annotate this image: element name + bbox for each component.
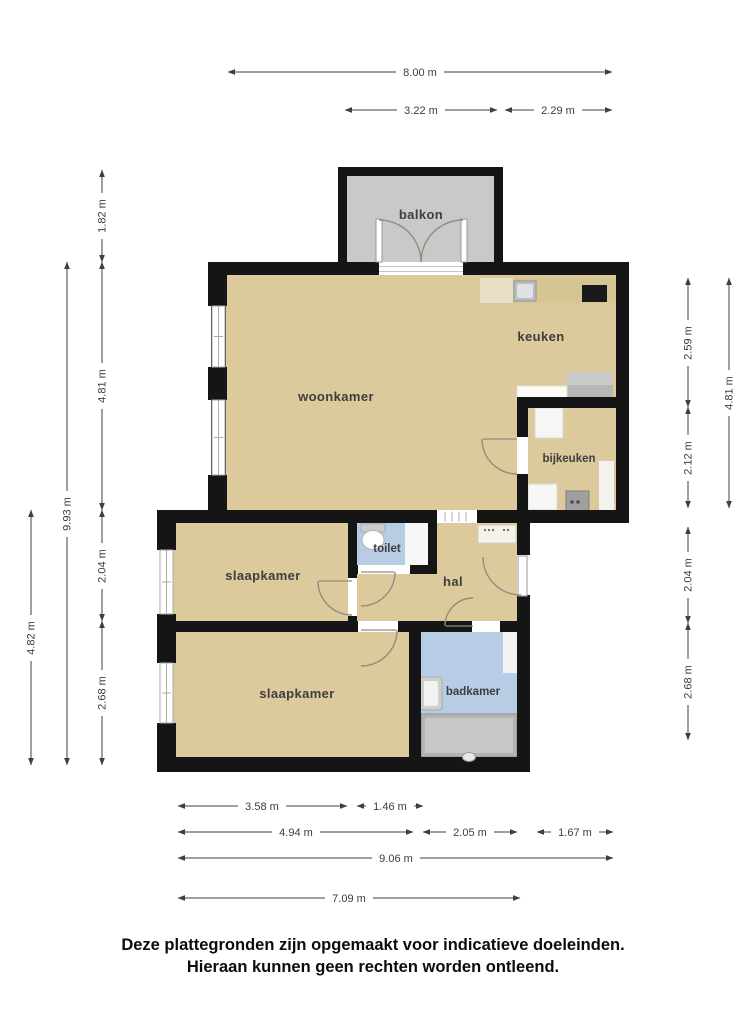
- svg-text:4.94 m: 4.94 m: [279, 827, 313, 839]
- svg-text:3.58 m: 3.58 m: [245, 801, 279, 813]
- dim-bottom-lower: 7.09 m: [178, 891, 520, 905]
- dim-bottom-slaap2: 3.58 m: [178, 799, 347, 813]
- cabinet: [528, 484, 557, 510]
- svg-text:2.29 m: 2.29 m: [541, 105, 575, 117]
- kitchen-counter-end: [480, 278, 513, 303]
- svg-text:1.67 m: 1.67 m: [558, 827, 592, 839]
- toilet-floor-white: [405, 523, 428, 565]
- svg-text:8.00 m: 8.00 m: [403, 67, 437, 79]
- dim-bottom-right: 1.67 m: [537, 825, 613, 839]
- keuken-label: keuken: [517, 329, 564, 344]
- disclaimer-line-2: Hieraan kunnen geen rechten worden ontle…: [187, 958, 559, 976]
- hal-label: hal: [443, 574, 463, 589]
- washer: [535, 408, 563, 438]
- toilet-right-wall: [428, 523, 437, 565]
- upper-right-wall: [616, 262, 629, 523]
- svg-text:2.04 m: 2.04 m: [683, 558, 695, 592]
- dim-left-total: 9.93 m: [60, 262, 74, 765]
- dim-right-bijkeuken: 2.12 m: [681, 407, 695, 508]
- radiator-dot: [503, 529, 505, 531]
- balkon-top-wall: [338, 167, 503, 176]
- svg-text:4.82 m: 4.82 m: [26, 621, 38, 655]
- upper-left-pier: [208, 367, 227, 400]
- badkamer-left-wall: [409, 621, 421, 757]
- radiator: [478, 525, 516, 543]
- radiator-dot: [484, 529, 486, 531]
- svg-text:2.05 m: 2.05 m: [453, 827, 487, 839]
- dim-left-slaap1: 2.04 m: [95, 510, 109, 621]
- fridge-top: [567, 372, 612, 385]
- dim-bottom-total: 9.06 m: [178, 851, 613, 865]
- dim-left-balkon: 1.82 m: [95, 170, 109, 262]
- svg-text:2.59 m: 2.59 m: [683, 326, 695, 360]
- dim-top-balkon: 3.22 m: [345, 103, 497, 117]
- radiator-dot: [488, 529, 490, 531]
- woonkamer-window-1: [212, 306, 225, 367]
- bijkeuken-label: bijkeuken: [542, 453, 595, 465]
- bathtub-inner: [425, 718, 513, 753]
- svg-text:9.93 m: 9.93 m: [62, 497, 74, 531]
- bijkeuken-door-opening: [517, 437, 528, 474]
- bathtub-drain: [463, 753, 476, 762]
- slaapkamer2-label: slaapkamer: [259, 686, 335, 701]
- appliance-knob: [570, 500, 573, 503]
- svg-text:4.81 m: 4.81 m: [97, 369, 109, 403]
- balkon-left-wall: [338, 167, 347, 262]
- svg-text:2.68 m: 2.68 m: [97, 676, 109, 710]
- upper-left-corner-bottom: [208, 475, 227, 510]
- kitchen-sink-basin: [517, 284, 533, 298]
- bathroom-sink-basin: [424, 681, 438, 706]
- svg-text:3.22 m: 3.22 m: [404, 105, 438, 117]
- dim-bottom-toilet: 1.46 m: [357, 799, 423, 813]
- toilet-door-opening: [358, 565, 410, 574]
- floorplan-page: balkon woonkamer keuken bijkeuken toilet…: [0, 0, 746, 1024]
- upper-left-corner-top: [208, 262, 227, 306]
- svg-text:7.09 m: 7.09 m: [332, 893, 366, 905]
- dim-right-keuken: 2.59 m: [681, 278, 695, 407]
- slaapkamer2-window: [160, 663, 173, 723]
- svg-text:2.12 m: 2.12 m: [683, 441, 695, 475]
- bijkeuken-top-wall: [517, 397, 629, 408]
- dim-left-slaap2: 2.68 m: [95, 621, 109, 765]
- woonkamer-label: woonkamer: [297, 389, 374, 404]
- woonkamer-window-2: [212, 400, 225, 475]
- slaapkamer1-window: [160, 550, 173, 614]
- disclaimer: Deze plattegronden zijn opgemaakt voor i…: [121, 936, 624, 976]
- shower-column: [503, 632, 517, 673]
- dim-bottom-badkamer: 2.05 m: [423, 825, 517, 839]
- dim-left-lower: 4.82 m: [24, 510, 38, 765]
- balkon-label: balkon: [399, 207, 443, 222]
- mid-wall: [160, 510, 629, 523]
- dim-top-total: 8.00 m: [228, 65, 612, 79]
- cooktop: [582, 285, 607, 302]
- svg-text:1.82 m: 1.82 m: [97, 199, 109, 233]
- disclaimer-line-1: Deze plattegronden zijn opgemaakt voor i…: [121, 936, 624, 954]
- svg-text:2.04 m: 2.04 m: [97, 549, 109, 583]
- dim-top-right: 2.29 m: [505, 103, 612, 117]
- slaapkamer1-label: slaapkamer: [225, 568, 301, 583]
- dim-right-badkamer: 2.68 m: [681, 623, 695, 740]
- hal-fixtures: [478, 525, 516, 543]
- svg-text:9.06 m: 9.06 m: [379, 853, 413, 865]
- badkamer-label: badkamer: [446, 686, 501, 698]
- appliance-knob: [576, 500, 579, 503]
- svg-text:1.46 m: 1.46 m: [373, 801, 407, 813]
- fridge-bottom: [567, 385, 613, 398]
- dim-left-woonkamer: 4.81 m: [95, 262, 109, 510]
- floorplan-canvas: balkon woonkamer keuken bijkeuken toilet…: [0, 0, 746, 1024]
- dim-bottom-left: 4.94 m: [178, 825, 413, 839]
- dim-right-hal: 2.04 m: [681, 527, 695, 623]
- badkamer-door-opening: [472, 621, 500, 632]
- hal-passage-opening: [437, 510, 477, 523]
- balcony-door-opening: [379, 262, 463, 275]
- balkon-right-wall: [494, 167, 503, 262]
- dim-right-upper: 4.81 m: [722, 278, 736, 508]
- svg-text:2.68 m: 2.68 m: [683, 665, 695, 699]
- radiator-dot: [507, 529, 509, 531]
- lower-left-corner-top: [157, 510, 176, 550]
- bijkeuken-shelf: [599, 461, 614, 510]
- svg-text:4.81 m: 4.81 m: [724, 376, 736, 410]
- toilet-label: toilet: [373, 543, 401, 555]
- slaapkamer1-door-opening: [348, 578, 357, 616]
- radiator-dot: [492, 529, 494, 531]
